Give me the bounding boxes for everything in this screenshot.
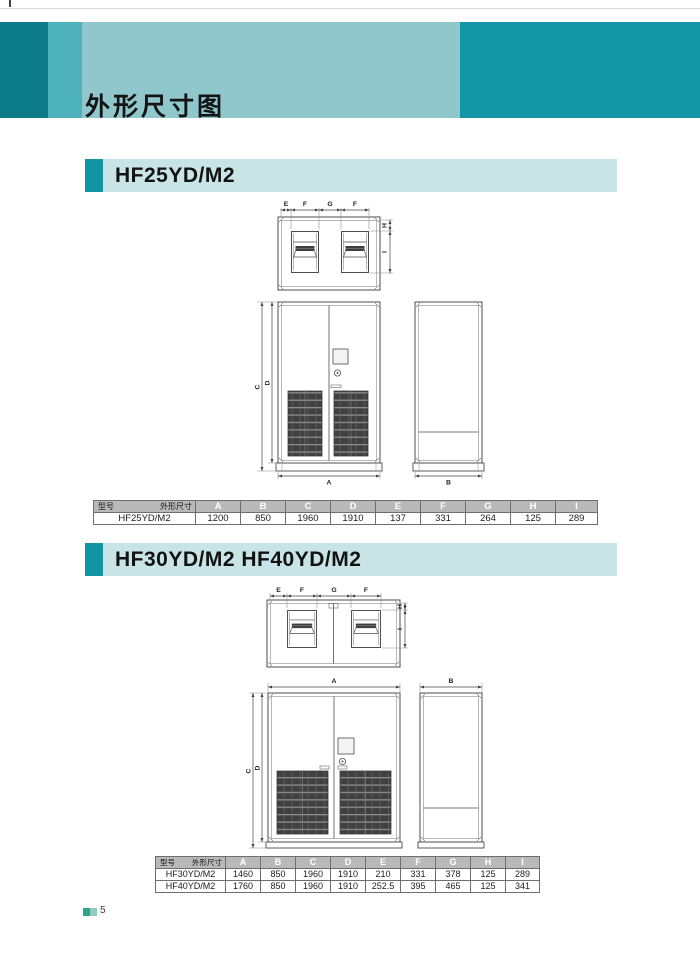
hf25-dimension-table: 外形尺寸 型号 A B C D E F G H I HF25YD/M2 1200… [93,500,598,525]
door-handle [331,385,341,388]
dim-label-f: F [303,201,307,208]
dim-label-f: F [364,587,368,594]
fan-opening [342,232,369,273]
value-cell: 289 [506,869,540,881]
col-header: I [556,501,598,513]
hf25-side-view: B [413,302,484,487]
hf30-top-view: E F G F H I [267,587,408,667]
dim-label-g: G [331,587,336,594]
value-cell: 1910 [331,881,366,893]
dim-label-i: I [382,251,389,253]
value-cell: 125 [511,513,556,525]
col-header: D [331,857,366,869]
base-plinth [413,463,484,471]
value-cell: 1760 [226,881,261,893]
col-header: B [261,857,296,869]
technical-drawing-overlay: E F G F H I [0,0,700,970]
corner-label-dimensions: 外形尺寸 [160,501,192,512]
value-cell: 395 [401,881,436,893]
control-display-panel [338,738,354,754]
base-plinth [266,842,402,848]
col-header: C [286,501,331,513]
value-cell: 137 [376,513,421,525]
base-plinth [418,842,484,848]
hf30-side-view [418,693,484,848]
fan-opening [288,610,317,647]
hf25-front-view: D C A [255,302,383,487]
door-handle [320,766,329,769]
fan-opening [292,232,319,273]
col-header: H [511,501,556,513]
col-header: G [466,501,511,513]
col-header: A [226,857,261,869]
corner-label-model: 型号 [98,501,114,512]
dim-label-b: B [446,480,451,487]
value-cell: 331 [421,513,466,525]
col-header: A [196,501,241,513]
value-cell: 1960 [286,513,331,525]
value-cell: 341 [506,881,540,893]
dim-label-a: A [332,678,337,685]
dim-label-c: C [255,384,262,389]
dim-label-h: H [382,223,389,228]
dim-label-f: F [300,587,304,594]
value-cell: 465 [436,881,471,893]
dim-label-f: F [353,201,357,208]
footer-square-light [90,908,97,916]
dim-label-d: D [255,765,262,770]
value-cell: 850 [241,513,286,525]
base-plinth [276,463,382,471]
table-corner-cell: 外形尺寸 型号 [94,501,196,513]
table-row: HF30YD/M2 1460 850 1960 1910 210 331 378… [156,869,540,881]
hf30-hf40-dimension-table: 外形尺寸 型号 A B C D E F G H I HF30YD/M2 1460… [155,856,540,893]
value-cell: 1960 [296,869,331,881]
col-header: F [421,501,466,513]
col-header: B [241,501,286,513]
dim-label-c: C [246,768,253,773]
value-cell: 1460 [226,869,261,881]
dim-label-d: D [265,380,272,385]
dim-label-b: B [449,678,454,685]
footer-page-marker [83,908,97,916]
model-cell: HF40YD/M2 [156,881,226,893]
value-cell: 331 [401,869,436,881]
door-handle [338,766,347,769]
value-cell: 1910 [331,513,376,525]
value-cell: 125 [471,869,506,881]
dim-label-a: A [327,480,332,487]
col-header: C [296,857,331,869]
value-cell: 210 [366,869,401,881]
hf30-front-view: A B D C [246,678,483,848]
value-cell: 289 [556,513,598,525]
col-header: I [506,857,540,869]
model-cell: HF25YD/M2 [94,513,196,525]
value-cell: 1910 [331,869,366,881]
corner-label-model: 型号 [160,857,175,868]
value-cell: 378 [436,869,471,881]
dim-label-i: I [397,628,404,630]
value-cell: 264 [466,513,511,525]
control-display-panel [333,349,348,364]
catalog-page: 外形尺寸图 HF25YD/M2 HF30YD/M2 HF40YD/M2 [0,0,700,970]
table-row: HF40YD/M2 1760 850 1960 1910 252.5 395 4… [156,881,540,893]
fan-opening [352,610,381,647]
value-cell: 850 [261,869,296,881]
dim-label-e: E [276,587,281,594]
col-header: E [376,501,421,513]
col-header: E [366,857,401,869]
page-number: 5 [100,904,106,918]
value-cell: 850 [261,881,296,893]
table-row: HF25YD/M2 1200 850 1960 1910 137 331 264… [94,513,598,525]
value-cell: 1200 [196,513,241,525]
dim-label-g: G [327,201,332,208]
value-cell: 1960 [296,881,331,893]
value-cell: 252.5 [366,881,401,893]
col-header: G [436,857,471,869]
footer-square-dark [83,908,90,916]
col-header: F [401,857,436,869]
dim-label-e: E [284,201,289,208]
corner-label-dimensions: 外形尺寸 [192,857,222,868]
hf25-top-view: E F G F H I [278,201,393,290]
col-header: D [331,501,376,513]
table-corner-cell: 外形尺寸 型号 [156,857,226,869]
dim-label-h: H [397,604,404,609]
model-cell: HF30YD/M2 [156,869,226,881]
value-cell: 125 [471,881,506,893]
col-header: H [471,857,506,869]
